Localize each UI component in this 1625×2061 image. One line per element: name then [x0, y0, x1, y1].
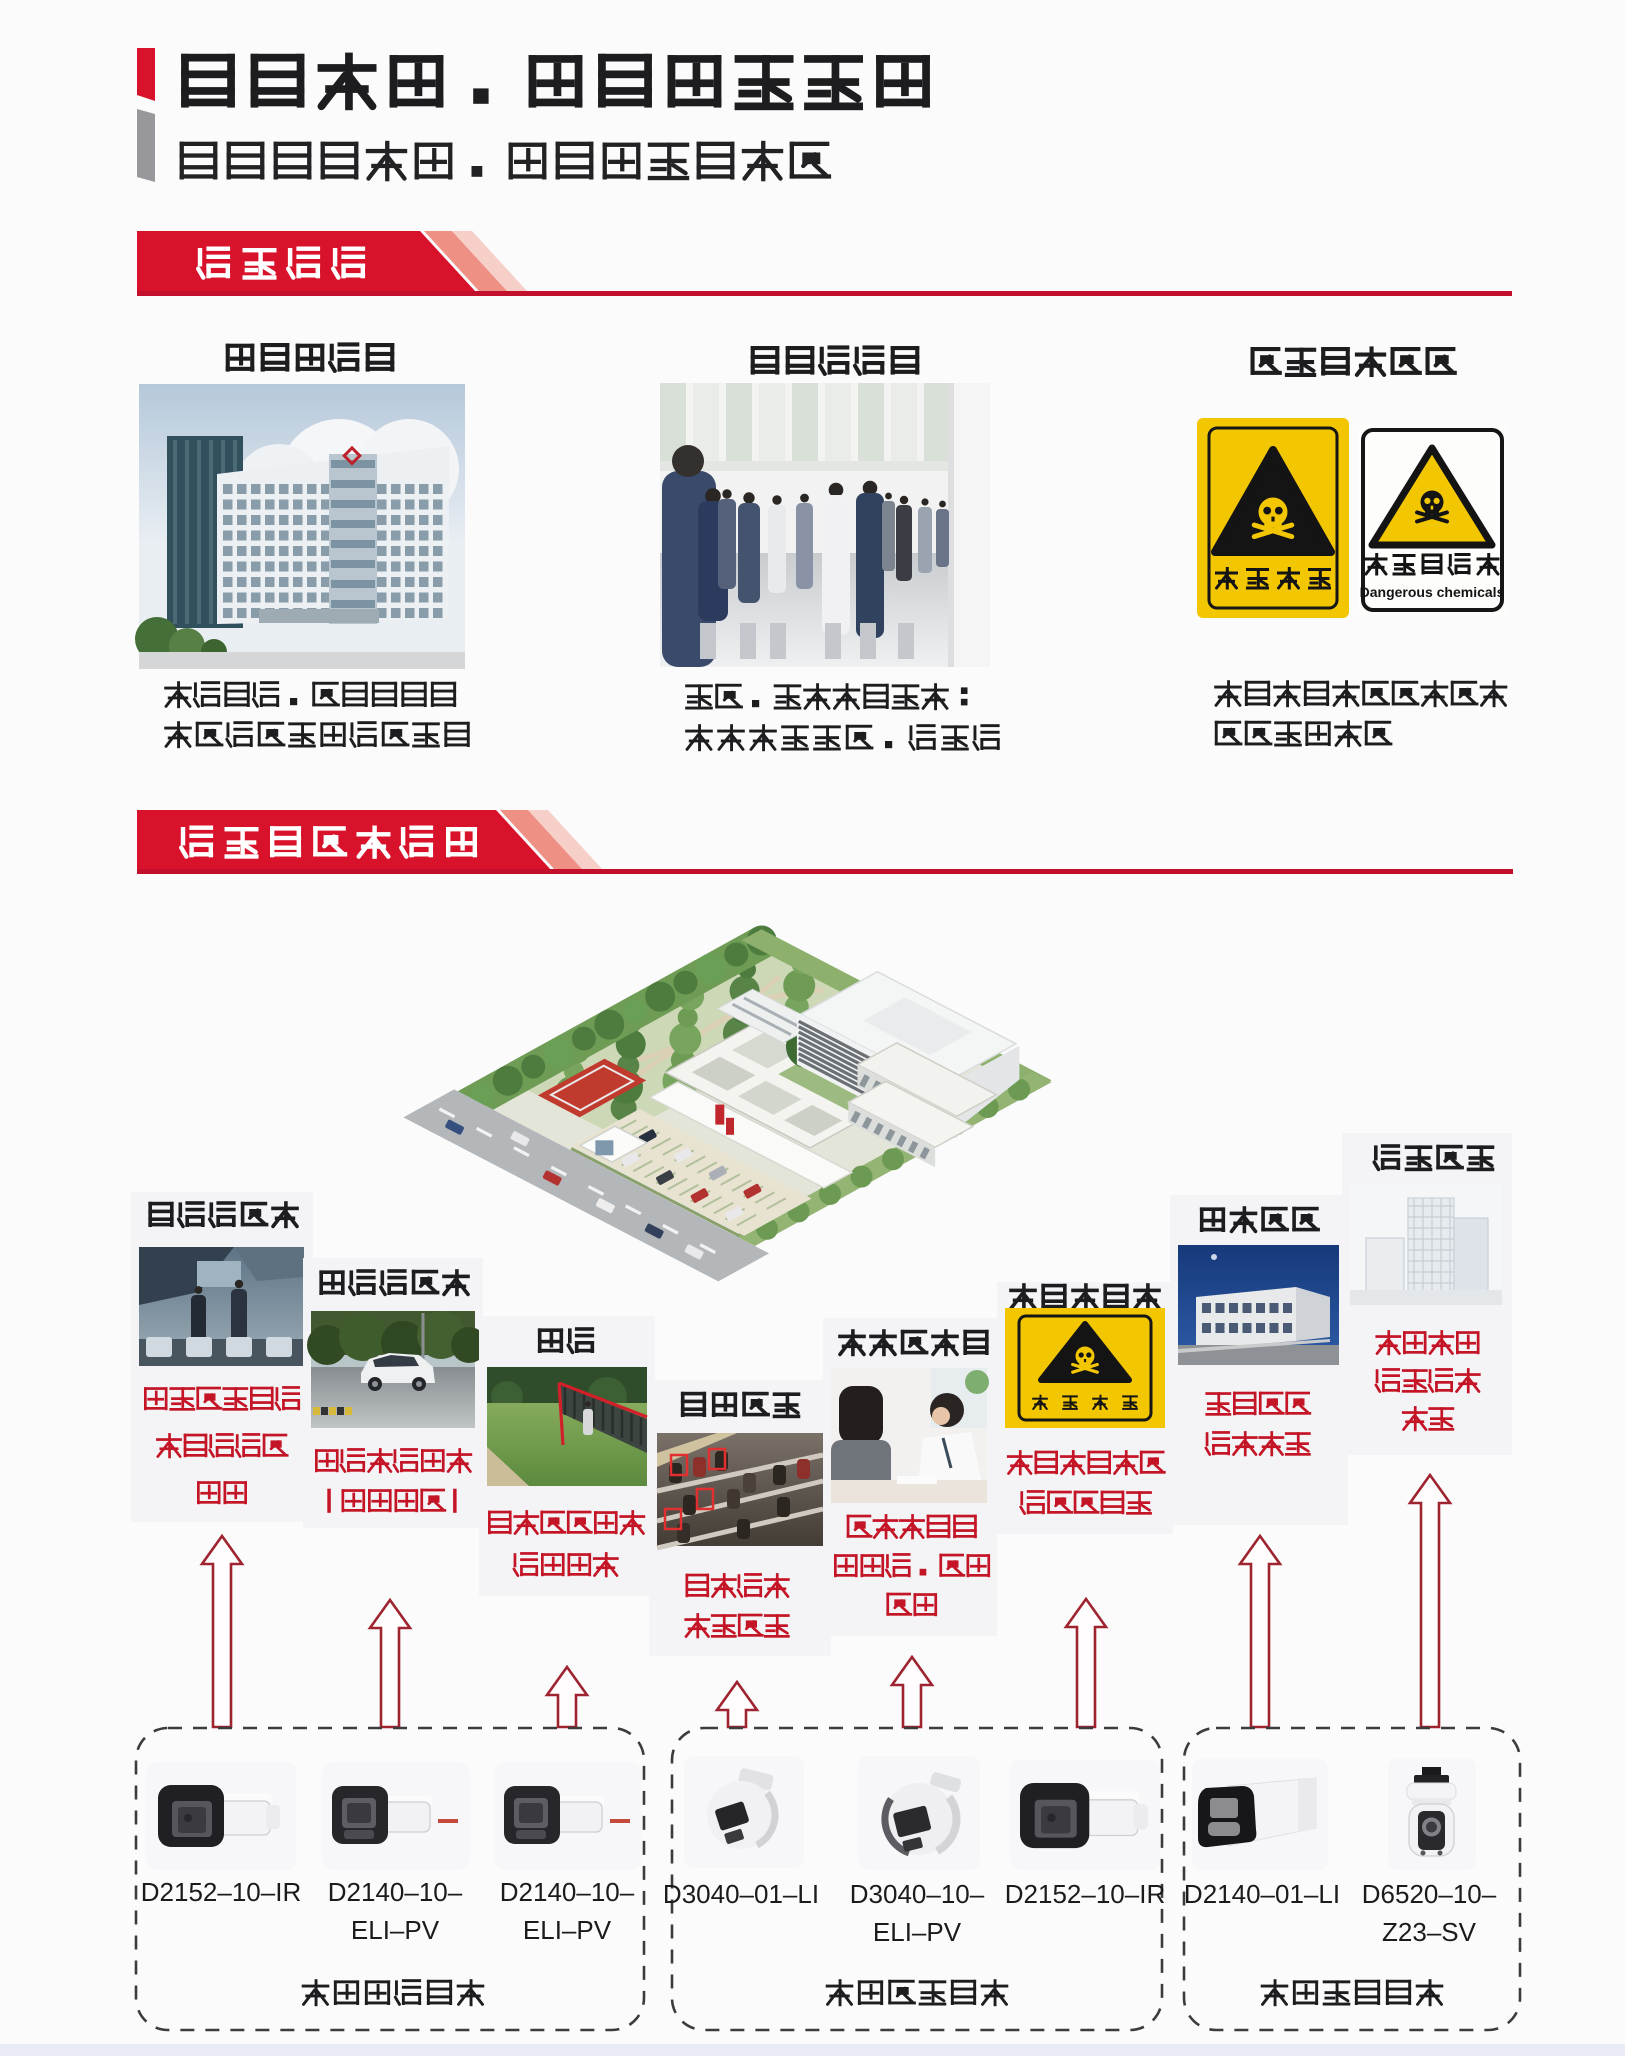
svg-text:Z23–SV: Z23–SV — [1382, 1917, 1477, 1947]
svg-text:D3040–10–: D3040–10– — [850, 1879, 985, 1909]
svg-text:Dangerous chemicals: Dangerous chemicals — [1360, 584, 1505, 600]
svg-text:ELI–PV: ELI–PV — [523, 1915, 612, 1945]
svg-text:ELI–PV: ELI–PV — [351, 1915, 440, 1945]
svg-text:D2140–10–: D2140–10– — [500, 1877, 635, 1907]
svg-text:D2152–10–IR: D2152–10–IR — [1005, 1879, 1165, 1909]
svg-text:D6520–10–: D6520–10– — [1362, 1879, 1497, 1909]
svg-text:D2152–10–IR: D2152–10–IR — [141, 1877, 301, 1907]
svg-text:D2140–01–LI: D2140–01–LI — [1184, 1879, 1340, 1909]
svg-text:ELI–PV: ELI–PV — [873, 1917, 962, 1947]
svg-text:D2140–10–: D2140–10– — [328, 1877, 463, 1907]
svg-text:D3040–01–LI: D3040–01–LI — [663, 1879, 819, 1909]
